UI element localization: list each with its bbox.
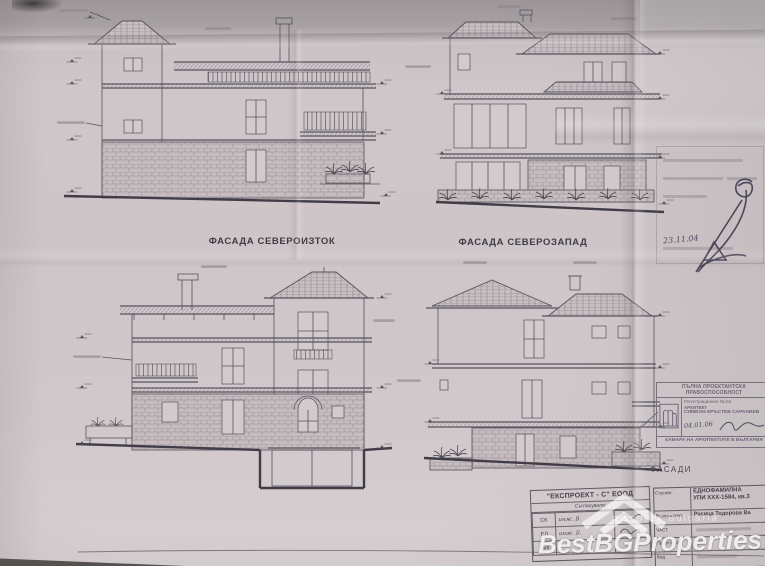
drawing-facade-northeast	[58, 10, 396, 203]
kind-label: Вид	[656, 552, 693, 566]
architect-stamp-registration: Регистрационен № 02	[684, 399, 765, 404]
signatory-label: СК	[532, 513, 555, 528]
designer-name: арх.	[692, 535, 765, 550]
architect-stamp-title: ПЪЛНА ПРОЕКТАНТСКА ПРАВОСПОСОБНОСТ	[657, 383, 765, 398]
designer-label: Проектант:	[655, 538, 692, 552]
table-row: ВиК	[533, 537, 650, 555]
kind-value	[693, 549, 765, 566]
architect-chamber-logo-icon	[657, 398, 682, 436]
part-label: ЧАСТ	[655, 525, 692, 538]
facade-northeast-label: ФАСАДА СЕВЕРОИЗТОК	[167, 236, 377, 247]
signatory-name	[556, 539, 616, 555]
drawing-set-label: ФАСАДИ	[650, 465, 692, 474]
drawing-facade-southwest	[398, 262, 674, 470]
architect-stamp: ПЪЛНА ПРОЕКТАНТСКА ПРАВОСПОСОБНОСТ Регис…	[656, 382, 765, 448]
project-line2: УПИ XXX-1584, кв.3	[693, 493, 765, 502]
architect-stamp-name: СИМЕОН КРЪСТЕВ САРАЛИЕВ	[684, 410, 765, 415]
signatory-label: ЕЛ	[533, 527, 556, 542]
part-value	[692, 522, 765, 536]
signatory-label: ВиК	[533, 541, 556, 556]
signatory-name: инж. В.	[555, 511, 615, 527]
drawing-facade-northwest	[406, 6, 674, 212]
approval-stamp: 23.11.04	[656, 146, 764, 264]
title-block-project: Строеж: ЕДНОФАМИЛНА УПИ XXX-1584, кв.3 В…	[653, 484, 765, 566]
client-label: Възложител:	[655, 511, 692, 525]
signatory-signature	[615, 523, 650, 538]
facade-northwest-label: ФАСАДА СЕВЕРОЗАПАД	[418, 237, 628, 248]
signatory-signature	[614, 509, 649, 524]
architect-stamp-footer: КАМАРА НА АРХИТЕКТИТЕ В БЪЛГАРИЯ	[657, 436, 765, 444]
photographed-blueprint-sheet: ФАСАДА СЕВЕРОИЗТОК ФАСАДА СЕВЕРОЗАПАД ФА…	[0, 0, 765, 566]
signatory-name: инж. Б.	[555, 525, 615, 541]
title-block-company: "ЕКСПРОЕКТ - С" ЕООД Съгласували: СК инж…	[530, 486, 652, 562]
architect-signature-icon	[718, 418, 765, 434]
architect-stamp-date: 04.01.06	[684, 420, 713, 430]
elevation-drawings	[0, 0, 765, 566]
approval-date-handwritten: 23.11.04	[663, 233, 699, 245]
drawing-facade-southeast-side	[74, 266, 394, 488]
project-label: Строеж:	[654, 488, 692, 511]
client-name: Росица Тодорова Ва	[692, 508, 765, 523]
signatory-signature	[615, 537, 650, 552]
